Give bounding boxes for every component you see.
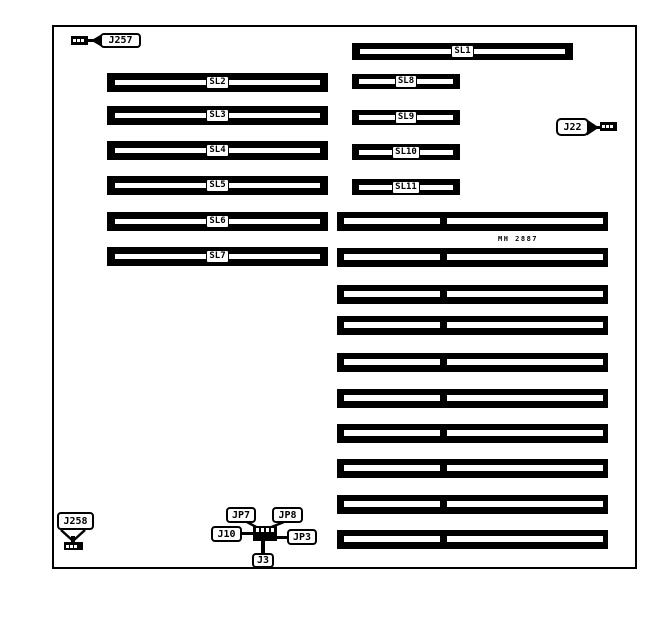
label-j22: J22: [556, 118, 589, 136]
label-j258: J258: [57, 512, 94, 530]
board-diagram: SL1 SL2 SL3 SL4 SL5 SL6 SL7 SL8 SL9 SL10…: [0, 0, 649, 620]
pointer-lines-layer: [0, 0, 649, 620]
label-j3: J3: [252, 553, 274, 568]
j22-pin-header-icon: [600, 122, 617, 131]
j257-pin-header-icon: [71, 36, 88, 45]
label-jp3: JP3: [287, 529, 317, 545]
j258-pointer-left-leg: [61, 530, 72, 540]
label-j257: J257: [100, 33, 141, 48]
label-jp8: JP8: [272, 507, 303, 523]
label-j10: J10: [211, 526, 242, 542]
jumper-block-icon: [253, 526, 277, 541]
j258-pin-header-icon: [64, 542, 83, 550]
j258-pointer-right-leg: [74, 530, 85, 540]
label-jp7: JP7: [226, 507, 256, 523]
